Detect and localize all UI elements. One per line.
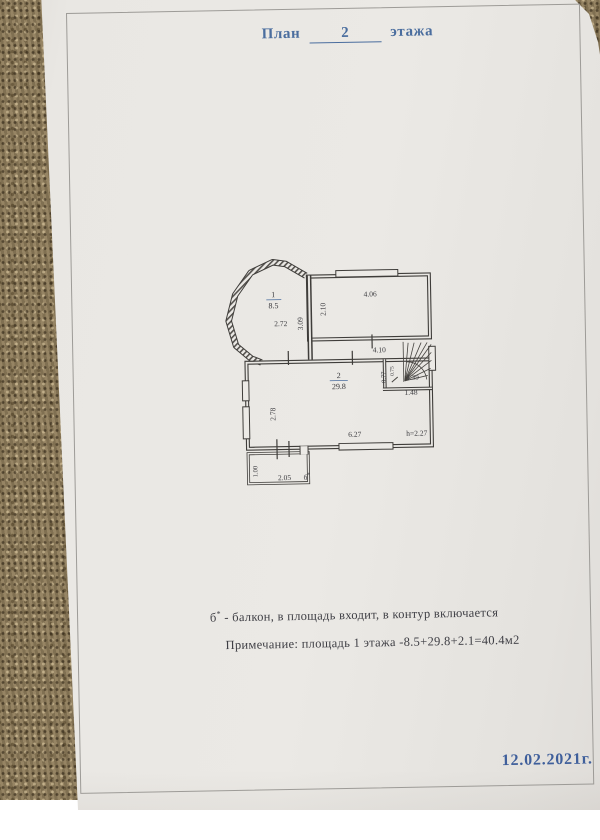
dim-4-06: 4.06 — [364, 289, 378, 298]
room2-number: 2 — [337, 371, 341, 380]
dim-0-75: 0.75 — [390, 366, 396, 376]
floor-plan-drawing: 1 8.5 2 29.8 2.72 3.09 2.10 4.06 4.10 0.… — [223, 249, 447, 490]
dim-2-05: 2.05 — [278, 473, 292, 482]
room1-right-wall — [309, 276, 311, 360]
window-top-icon — [336, 269, 398, 277]
dim-1-39: 1.39 — [407, 374, 420, 382]
balcony-door-opening — [299, 446, 308, 454]
title-word: План — [261, 26, 300, 44]
floor-number-field: 2 — [309, 25, 381, 43]
date-stamp: 12.02.2021г. — [481, 750, 593, 770]
dim-2-72: 2.72 — [274, 319, 288, 328]
window-bottom-icon — [339, 443, 393, 450]
tick-marks — [275, 334, 374, 459]
footnote-balcony: б* - балкон, в площадь входит, в контур … — [134, 603, 574, 627]
room2-label: 2 29.8 — [330, 371, 348, 391]
room1-number: 1 — [271, 290, 275, 299]
page-title: План 2 этажа — [207, 22, 487, 45]
dim-3-09: 3.09 — [296, 317, 305, 331]
dim-2-10: 2.10 — [318, 302, 327, 316]
dim-1-48: 1.48 — [404, 388, 418, 397]
dim-0-77: 0.77 — [381, 371, 388, 383]
floor-number: 2 — [341, 25, 349, 41]
dim-1-00: 1.00 — [252, 466, 259, 478]
room2-area: 29.8 — [332, 382, 346, 391]
room1-area: 8.5 — [268, 301, 278, 310]
printed-border-frame: План 2 этажа — [66, 4, 594, 794]
dim-6-27: 6.27 — [348, 430, 362, 439]
window-right-icon — [429, 346, 436, 370]
bay-window-wall — [228, 262, 308, 363]
footnote-area-sum: Примечание: площадь 1 этажа -8.5+29.8+2.… — [152, 631, 592, 654]
window-left-lower-icon — [243, 407, 250, 439]
dim-4-10: 4.10 — [373, 345, 387, 354]
room1-label: 1 8.5 — [266, 290, 281, 310]
window-left-upper-icon — [242, 381, 249, 401]
dim-arrow — [392, 377, 398, 382]
ceiling-height-label: h=2.27 — [406, 428, 428, 437]
dim-2-78: 2.78 — [268, 407, 277, 421]
title-suffix: этажа — [390, 23, 433, 41]
footnote-balcony-text: - балкон, в площадь входит, в контур вкл… — [221, 605, 499, 624]
